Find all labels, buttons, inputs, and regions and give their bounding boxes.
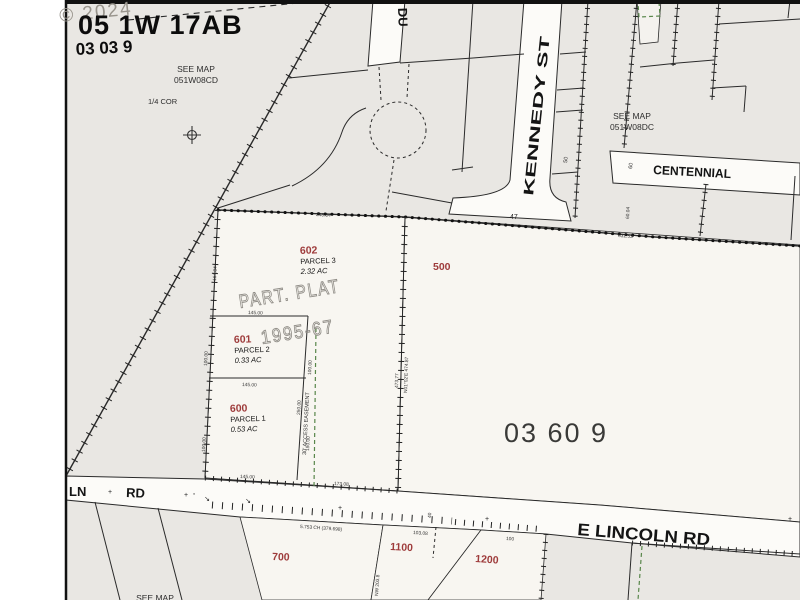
dim-100-601e: 100.00: [307, 360, 314, 375]
see-map-ne-line1: SEE MAP: [613, 111, 651, 121]
monument-cross-icon: +: [338, 505, 342, 512]
monument-cross-icon: +: [788, 516, 792, 523]
parcel-1200-number: 1200: [475, 553, 499, 567]
parcel-600-acres: 0.53 AC: [230, 424, 258, 434]
dim-145-bot: 145.00: [240, 474, 255, 481]
dim-150-600e: 150.00: [305, 436, 312, 451]
parcel-601-name: PARCEL 2: [234, 345, 270, 355]
dim-60-04: 60.04: [625, 206, 632, 219]
street-du-label: DU: [395, 8, 411, 27]
dim-145-top: 145.00: [248, 310, 263, 317]
assessor-plat-map: © 2024 05 1W 17AB 03 03 9 SEE MAP 051W08…: [0, 0, 800, 600]
map-subtitle: 03 03 9: [75, 37, 133, 59]
monument-cross-icon: +: [485, 516, 489, 523]
parcel-500-region: [398, 217, 800, 522]
parcel-602-number: 602: [300, 244, 318, 257]
dim-248-84: 248.84: [316, 212, 331, 219]
dim-50: 50: [563, 156, 570, 163]
parcel-602-name: PARCEL 3: [300, 256, 336, 266]
dim-47: 47: [510, 214, 518, 221]
dim-103-08: 103.08: [413, 530, 428, 537]
see-map-nw-line2: 051W08CD: [174, 75, 218, 85]
left-margin: [0, 0, 66, 600]
see-map-ne-line2: 051W08DC: [610, 122, 654, 132]
parcel-600-name: PARCEL 1: [230, 414, 266, 424]
monument-dot-icon: ◦: [193, 491, 195, 498]
parcel-602-acres: 2.32 AC: [299, 266, 328, 276]
monument-cross-icon: +: [184, 492, 188, 499]
dim-164-84: 164.84: [212, 266, 219, 281]
dim-60: 60: [628, 162, 635, 169]
dim-145-mid: 145.00: [242, 382, 257, 389]
see-map-south: SEE MAP: [136, 593, 174, 600]
monument-arrow-icon: ↘: [245, 498, 251, 505]
dim-173-08: 173.08: [334, 481, 349, 488]
dim-100-601w: 100.00: [203, 351, 210, 366]
map-canvas: © 2024 05 1W 17AB 03 03 9 SEE MAP 051W08…: [0, 0, 800, 600]
parcel-500-number: 500: [433, 261, 451, 273]
street-lincoln-rd-label: RD: [126, 485, 145, 501]
dim-632-53: 632.53: [618, 233, 633, 240]
parcel-601-acres: 0.33 AC: [234, 355, 262, 365]
map-title: 05 1W 17AB: [78, 10, 243, 40]
parcel-1100-number: 1100: [390, 541, 414, 554]
map-top-border: [66, 0, 800, 4]
dim-40: 40: [427, 512, 433, 518]
dim-473-77: 473.77: [394, 373, 401, 388]
dim-100-road: 100: [506, 536, 515, 543]
ne-small-lot-region: [637, 0, 661, 44]
parcel-600-number: 600: [230, 402, 248, 415]
quarter-corner-label: 1/4 COR: [148, 97, 178, 106]
dim-100-600w: 100.00: [201, 437, 208, 452]
parcel-700-number: 700: [272, 551, 290, 564]
parcel-601-number: 601: [234, 333, 252, 346]
monument-cross-icon: +: [108, 489, 112, 496]
street-lincoln-ln-label: LN: [69, 484, 86, 499]
dim-250: 250.00: [296, 400, 303, 415]
monument-arrow-icon: ↘: [204, 496, 210, 503]
see-map-nw-line1: SEE MAP: [177, 64, 215, 74]
area-code-label: 03 60 9: [504, 418, 608, 448]
